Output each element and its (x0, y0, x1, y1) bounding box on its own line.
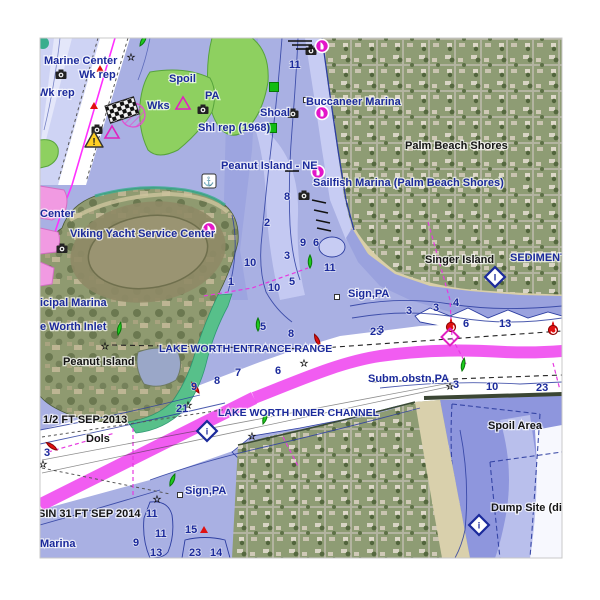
place-label: Buccaneer Marina (306, 96, 402, 108)
depth-sounding: 3 (44, 447, 50, 459)
depth-sounding: 4 (453, 297, 460, 309)
depth-sounding: 6 (463, 318, 469, 330)
depth-sounding: 8 (214, 375, 220, 387)
depth-sounding: 3 (284, 250, 290, 262)
islet (319, 237, 345, 257)
depth-sounding: 9 (191, 381, 197, 393)
place-label: SIN 31 FT SEP 2014 (38, 508, 141, 520)
depth-sounding: 8 (284, 191, 290, 203)
chartplotter-map[interactable]: ☆☆☆☆☆☆☆☆Iii⚓! Marine CenterWk repWk repS… (0, 0, 600, 600)
place-label: Wks (147, 100, 170, 112)
depth-sounding: 23 (189, 547, 201, 559)
depth-sounding: 5 (289, 276, 295, 288)
place-label: PA (205, 90, 220, 102)
marina-icon[interactable] (316, 40, 329, 53)
place-label: Wk rep (79, 69, 116, 81)
place-label: Peanut Island - NE (221, 160, 318, 172)
place-label: e Worth Inlet (40, 321, 107, 333)
svg-text:i: i (478, 521, 481, 531)
place-label: Marina (40, 538, 76, 550)
green-buoy-icon[interactable] (308, 255, 312, 268)
place-label: SEDIMENT (510, 252, 567, 264)
depth-sounding: 23 (536, 382, 548, 394)
depth-sounding: 10 (268, 282, 280, 294)
svg-text:i: i (206, 427, 209, 437)
depth-sounding: 11 (155, 528, 167, 540)
place-label: LAKE WORTH ENTRANCE RANGE (159, 343, 332, 355)
svg-text:☆: ☆ (127, 53, 136, 64)
place-label: Wk rep (38, 87, 75, 99)
depth-sounding: 10 (244, 257, 256, 269)
place-label: Center (40, 208, 76, 220)
depth-sounding: 13 (150, 547, 162, 559)
place-label: Shl rep (1968) (198, 122, 270, 134)
place-label: Marine Center (44, 55, 118, 67)
place-label: 1/2 FT SEP 2013 (43, 414, 127, 426)
place-label: LAKE WORTH INNER CHANNEL (218, 407, 380, 419)
depth-sounding: 5 (260, 321, 266, 333)
depth-sounding: 10 (486, 381, 498, 393)
place-label: Sign,PA (348, 288, 389, 300)
depth-sounding: 6 (275, 365, 281, 377)
place-label: Viking Yacht Service Center (70, 228, 216, 240)
depth-sounding: 3 (433, 302, 439, 314)
depth-sounding: 3 (406, 305, 412, 317)
place-label: Singer Island (425, 254, 494, 266)
depth-sounding: 3 (378, 324, 384, 336)
waypoint-star-icon[interactable]: ☆ (248, 432, 257, 443)
depth-sounding: 11 (289, 59, 301, 71)
svg-text:☆: ☆ (248, 432, 257, 443)
nautical-chart-canvas[interactable]: ☆☆☆☆☆☆☆☆Iii⚓! Marine CenterWk repWk repS… (0, 0, 600, 600)
svg-text:☆: ☆ (153, 495, 162, 506)
depth-sounding: 11 (146, 508, 158, 520)
place-label: Sailfish Marina (Palm Beach Shores) (313, 177, 504, 189)
waypoint-star-icon[interactable]: ☆ (127, 53, 136, 64)
depth-sounding: 2 (264, 217, 270, 229)
place-label: Dump Site (di (491, 502, 562, 514)
depth-sounding: 14 (210, 547, 223, 559)
green-square-buoy-icon[interactable] (270, 83, 279, 92)
depth-sounding: 21 (176, 403, 188, 415)
depth-sounding: 15 (185, 524, 197, 536)
marina-icon[interactable] (316, 107, 329, 120)
depth-sounding: 8 (288, 328, 294, 340)
place-label: Palm Beach Shores (405, 140, 508, 152)
place-label: Dols (86, 433, 110, 445)
depth-sounding: 1 (228, 276, 234, 288)
place-label: Spoil (169, 73, 196, 85)
svg-text:⚓: ⚓ (203, 176, 214, 187)
svg-text:!: ! (92, 137, 95, 148)
place-label: Spoil Area (488, 420, 543, 432)
waypoint-star-icon[interactable]: ☆ (300, 359, 309, 370)
depth-sounding: 7 (235, 367, 241, 379)
place-label: Shoal (260, 107, 290, 119)
depth-sounding: 3 (453, 379, 459, 391)
place-label: icipal Marina (40, 297, 108, 309)
svg-text:☆: ☆ (101, 342, 110, 353)
place-label: Sign,PA (185, 485, 226, 497)
anchorage-icon[interactable]: ⚓ (202, 174, 216, 188)
place-label: Peanut Island (63, 356, 135, 368)
place-label: Subm obstn,PA (368, 373, 449, 385)
depth-sounding: 11 (324, 262, 336, 274)
svg-text:☆: ☆ (300, 359, 309, 370)
waypoint-star-icon[interactable]: ☆ (153, 495, 162, 506)
depth-sounding: 6 (313, 237, 319, 249)
small-square-mark (178, 493, 183, 498)
depth-sounding: 13 (499, 318, 511, 330)
depth-sounding: 9 (300, 237, 306, 249)
small-square-mark (335, 295, 340, 300)
waypoint-star-icon[interactable]: ☆ (101, 342, 110, 353)
svg-text:I: I (494, 273, 497, 283)
depth-sounding: 9 (133, 537, 139, 549)
teal-blob (37, 37, 49, 49)
